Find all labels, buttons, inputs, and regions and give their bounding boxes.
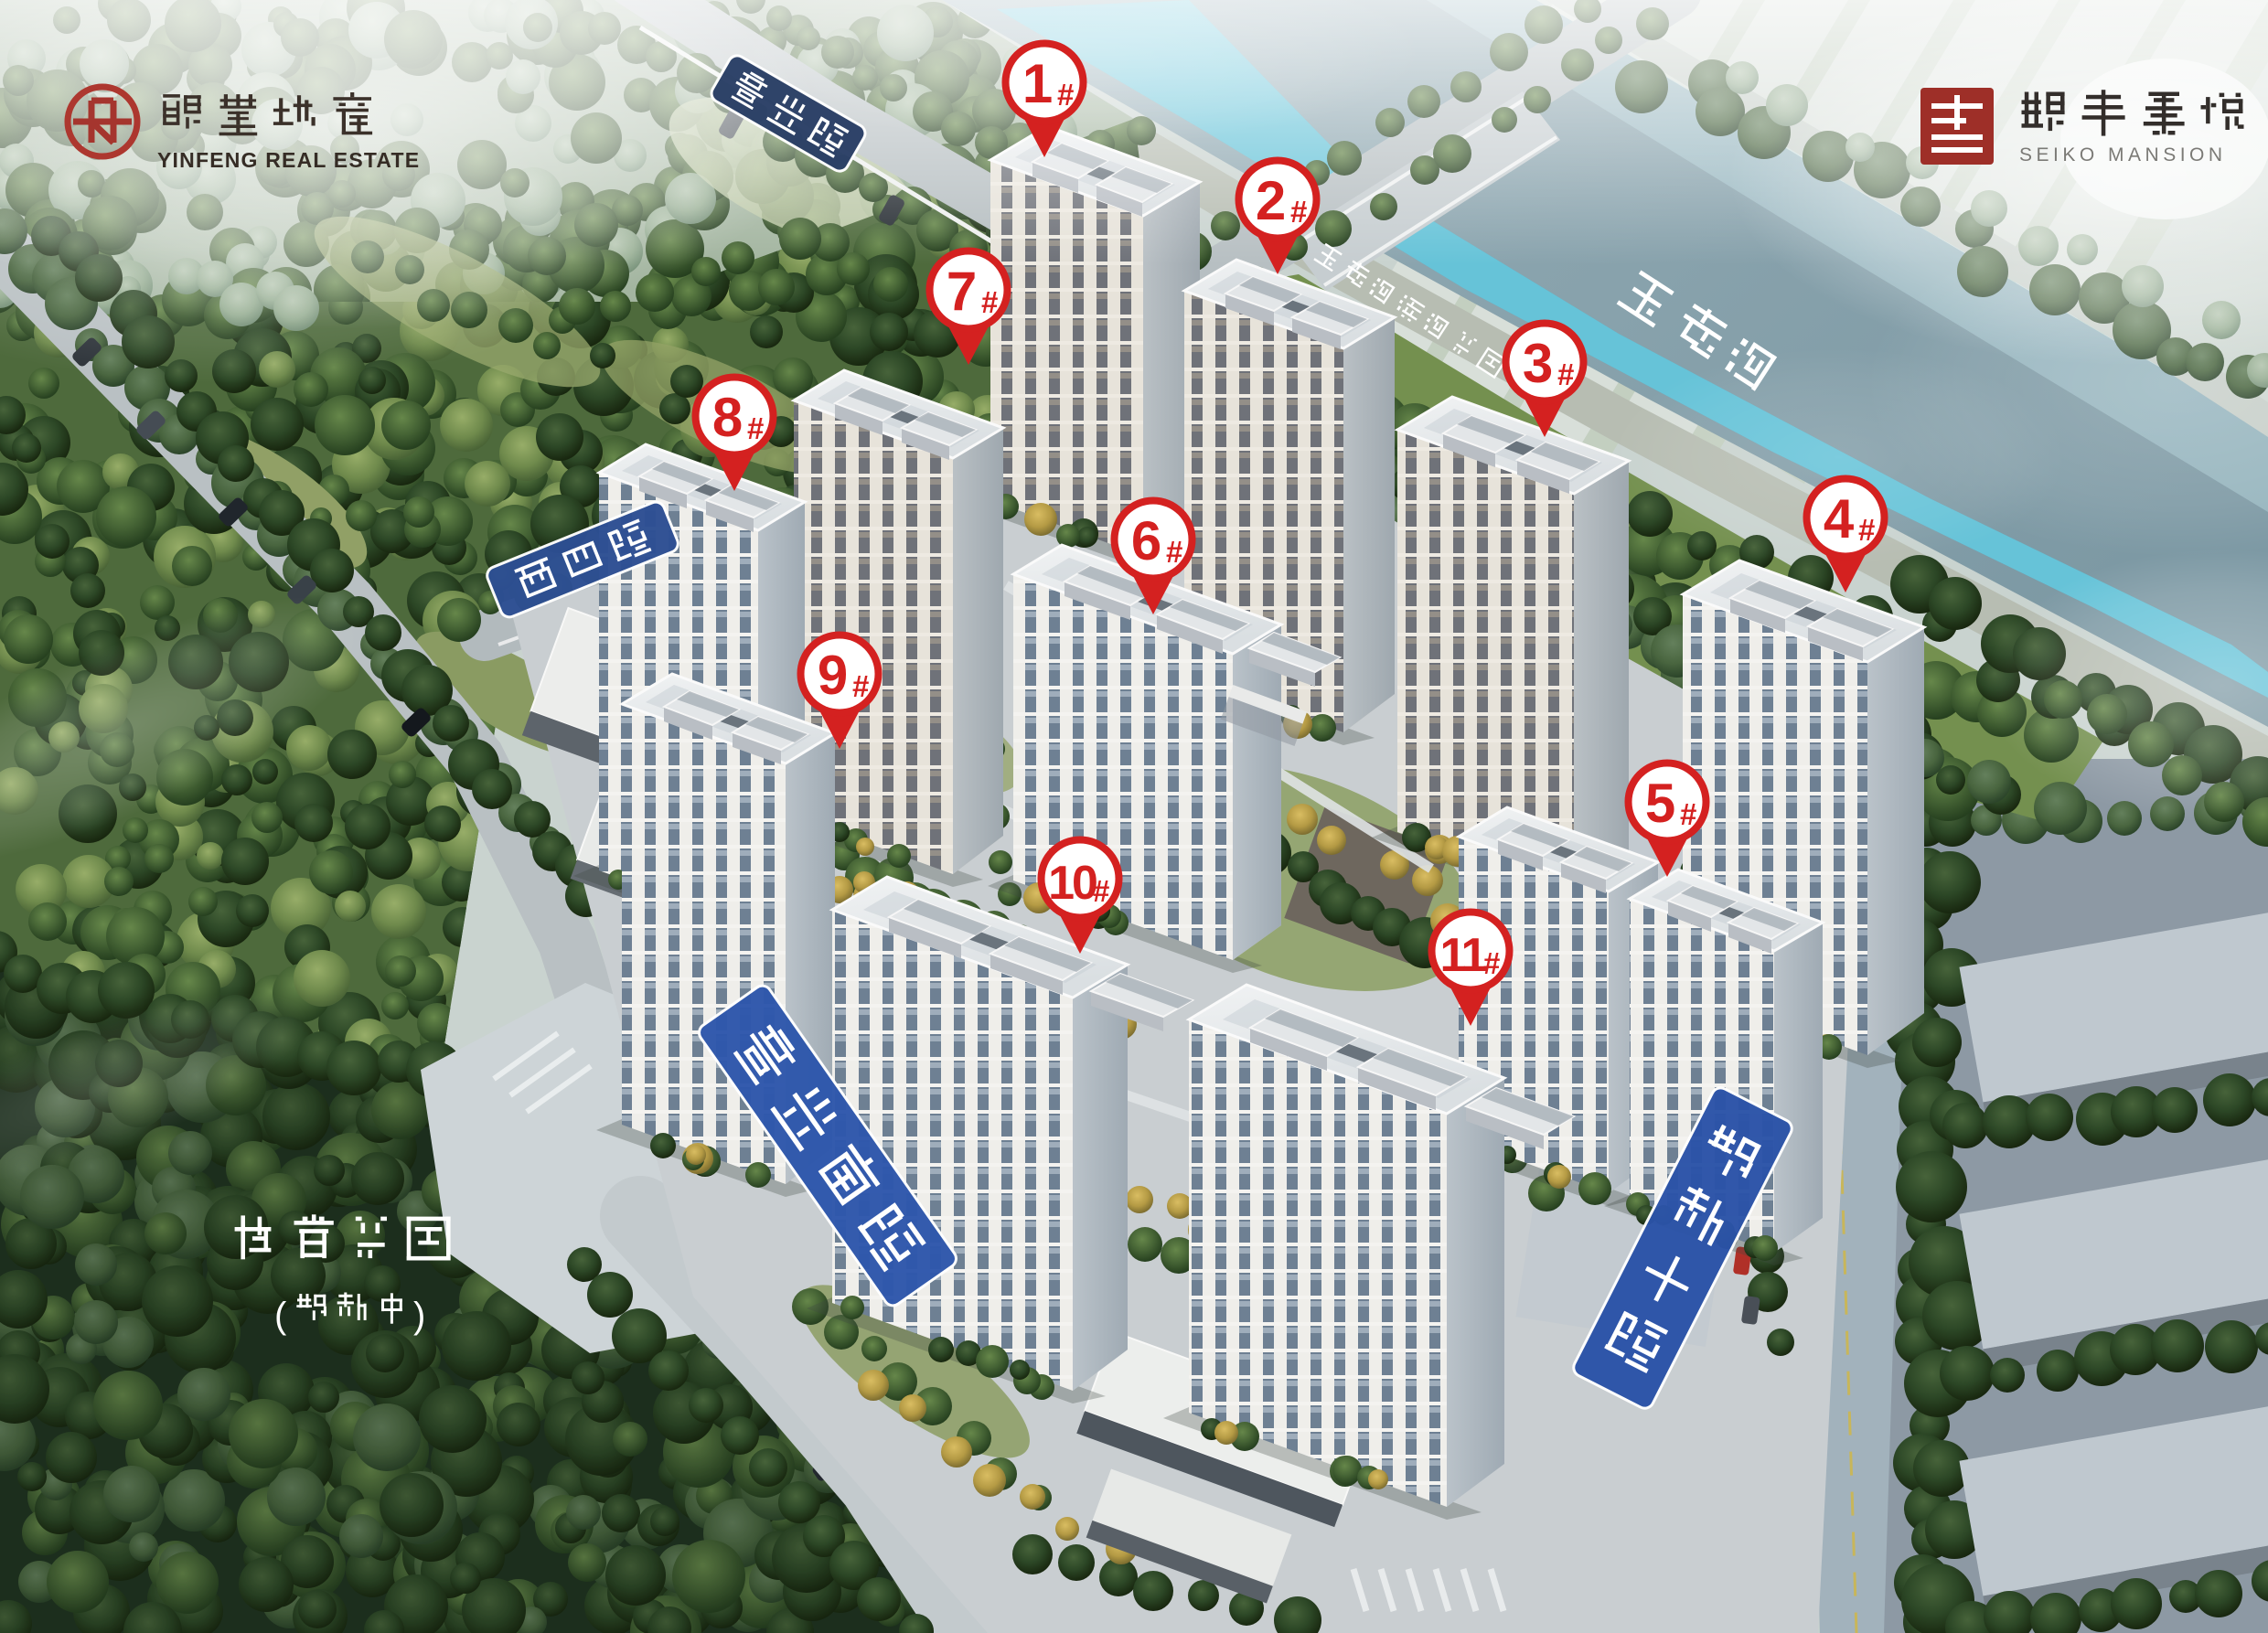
svg-text:5: 5 [1645, 773, 1674, 834]
svg-text:#: # [1057, 78, 1074, 112]
svg-text:9: 9 [818, 645, 847, 706]
svg-text:#: # [1858, 513, 1875, 547]
svg-text:3: 3 [1523, 333, 1552, 394]
svg-text:1: 1 [1022, 53, 1052, 114]
svg-text:#: # [1093, 874, 1109, 908]
svg-text:11: 11 [1440, 929, 1487, 982]
svg-text:(: ( [274, 1296, 287, 1336]
svg-text:#: # [1166, 535, 1182, 569]
svg-text:6: 6 [1131, 510, 1161, 571]
svg-text:#: # [747, 411, 764, 445]
svg-text:7: 7 [947, 261, 975, 322]
svg-text:#: # [852, 669, 869, 703]
svg-text:): ) [413, 1296, 425, 1336]
svg-text:#: # [1557, 358, 1574, 391]
svg-text:8: 8 [712, 387, 742, 448]
svg-text:SEIKO MANSION: SEIKO MANSION [2019, 144, 2227, 165]
svg-text:2: 2 [1256, 170, 1284, 231]
svg-text:#: # [1680, 797, 1696, 831]
svg-text:#: # [1483, 946, 1500, 980]
svg-text:#: # [1290, 195, 1307, 229]
svg-text:10: 10 [1048, 857, 1097, 910]
svg-text:YINFENG REAL ESTATE: YINFENG REAL ESTATE [157, 148, 420, 172]
svg-text:#: # [981, 285, 998, 319]
svg-text:4: 4 [1824, 488, 1855, 550]
